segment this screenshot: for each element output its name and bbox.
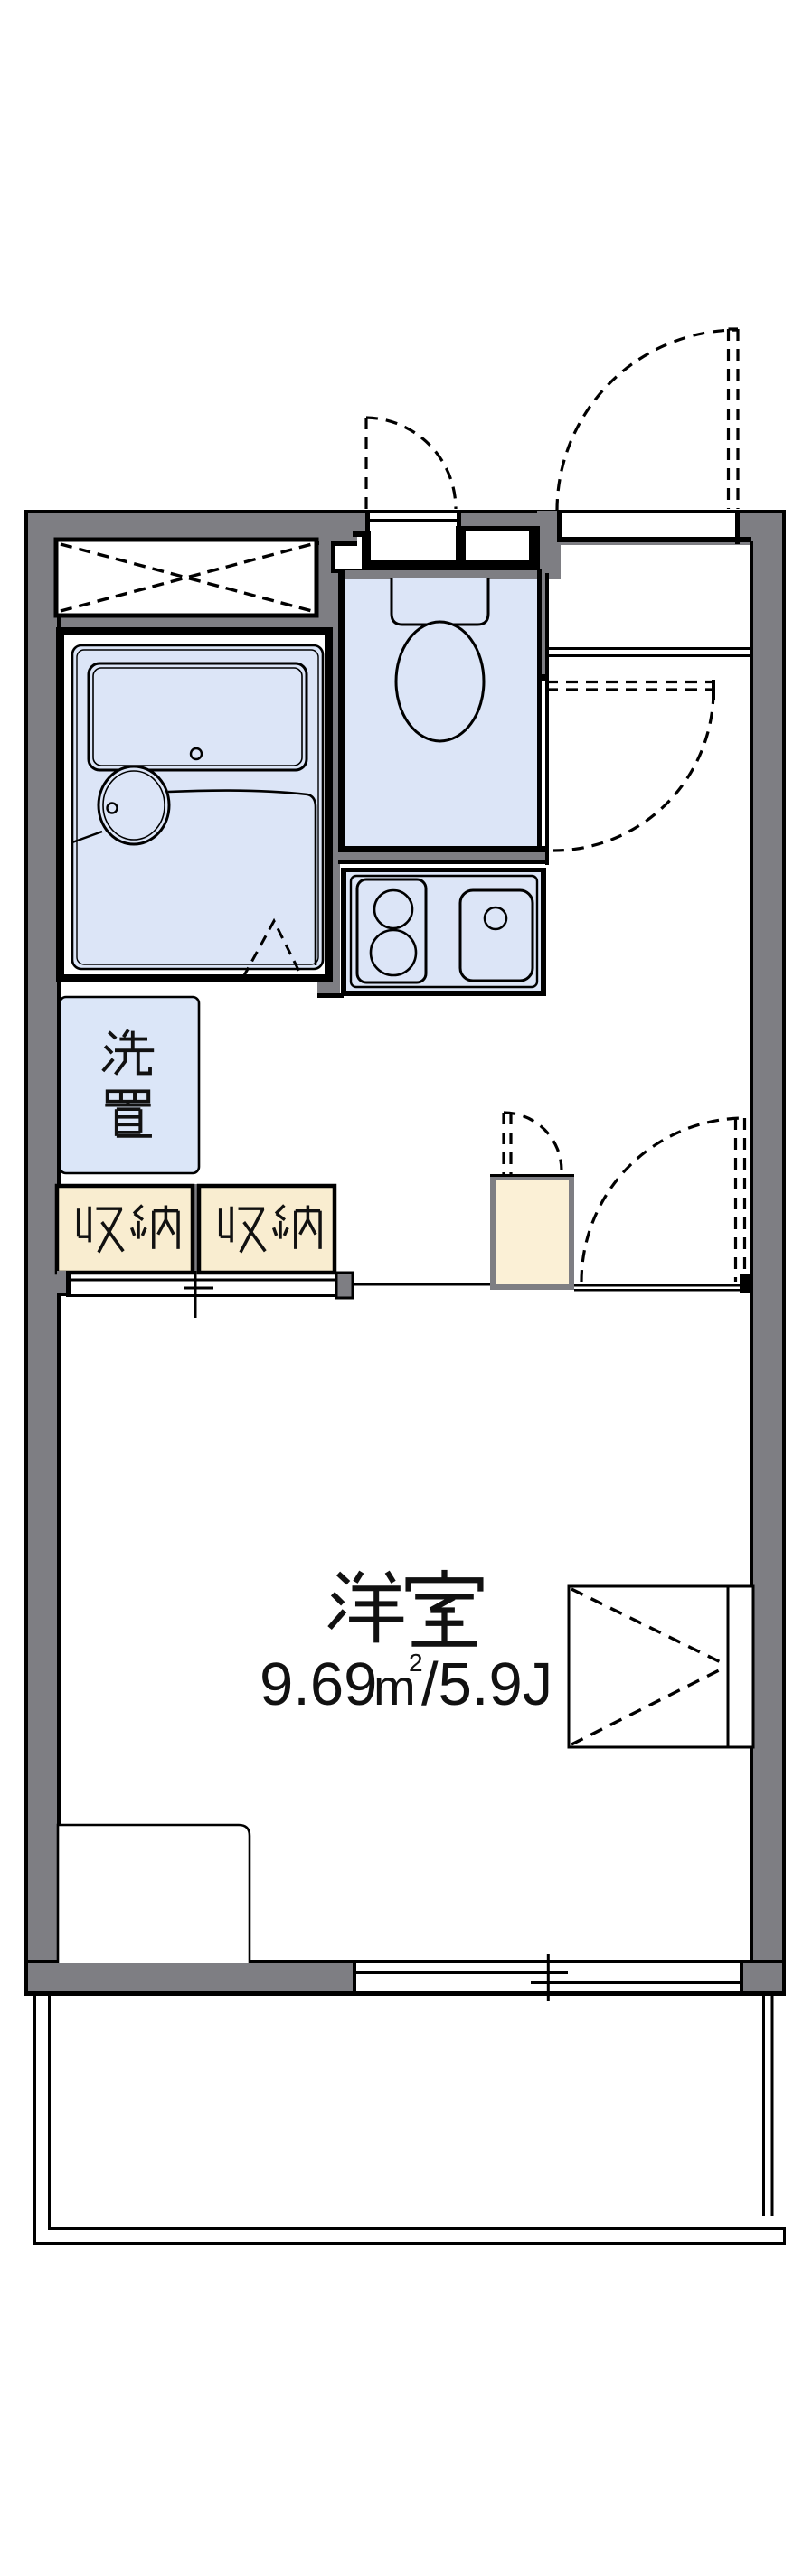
svg-text:9.69: 9.69 — [260, 1650, 377, 1718]
svg-text:/5.9J: /5.9J — [421, 1650, 552, 1718]
